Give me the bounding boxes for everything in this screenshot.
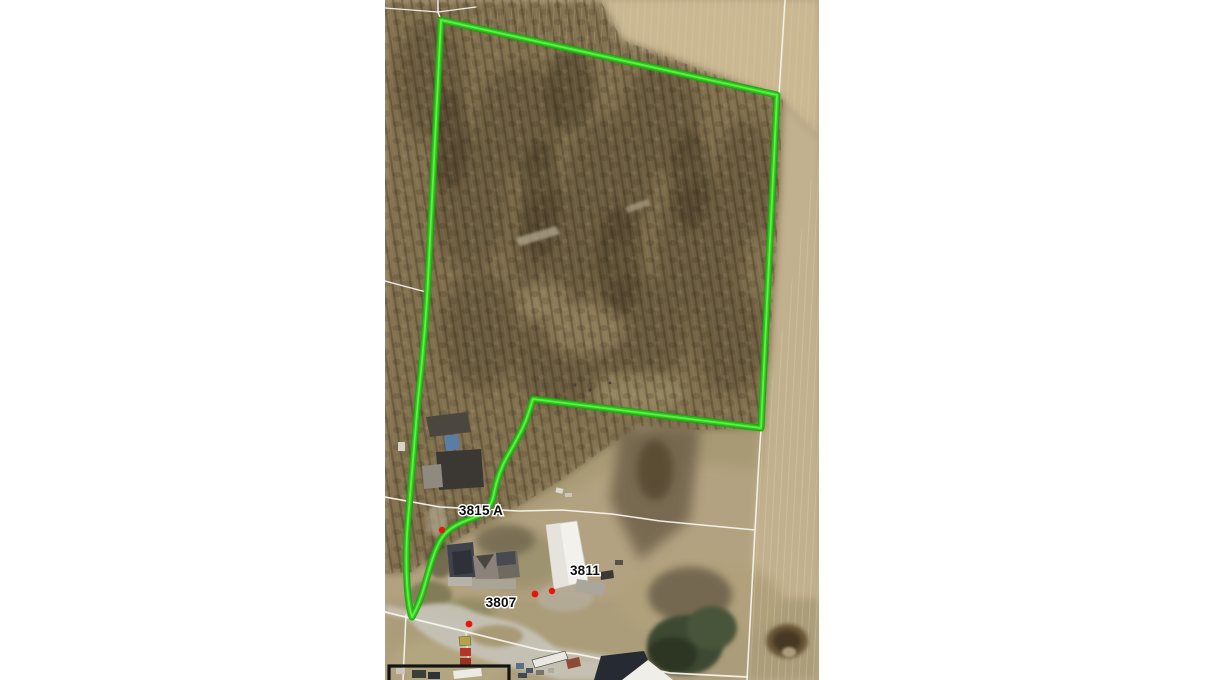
truck-red [460, 648, 471, 656]
parcel-label-3811: 3811 [570, 563, 600, 578]
page-background: { "map": { "type": "aerial-parcel-map", … [0, 0, 1208, 680]
house-3807-left-panel [452, 550, 473, 575]
car-yellow [459, 636, 471, 646]
concrete-pad [448, 577, 472, 586]
red-point-marker [466, 621, 473, 628]
aerial-map-viewport[interactable]: 3815 A 3811 3807 [385, 0, 819, 680]
parcel-label-3807: 3807 [486, 595, 517, 610]
vehicle [396, 668, 405, 674]
small-white-shed [398, 442, 405, 451]
parcel-label-3815a: 3815 A [459, 503, 503, 518]
red-point-marker [439, 527, 445, 533]
blue-tarp [444, 434, 460, 451]
aerial-map: 3815 A 3811 3807 [385, 0, 819, 680]
truck-red [460, 658, 471, 665]
house-roof-dark [436, 449, 484, 490]
brush-mound [766, 624, 808, 658]
vehicle [565, 493, 572, 497]
red-point-marker [532, 591, 539, 598]
vehicle [428, 672, 440, 679]
red-point-marker [549, 588, 555, 594]
concrete-pad [472, 579, 516, 589]
vehicle [615, 560, 623, 565]
gray-shed [422, 464, 443, 489]
vehicle [412, 670, 426, 678]
house-3807-right-panel [496, 551, 516, 566]
